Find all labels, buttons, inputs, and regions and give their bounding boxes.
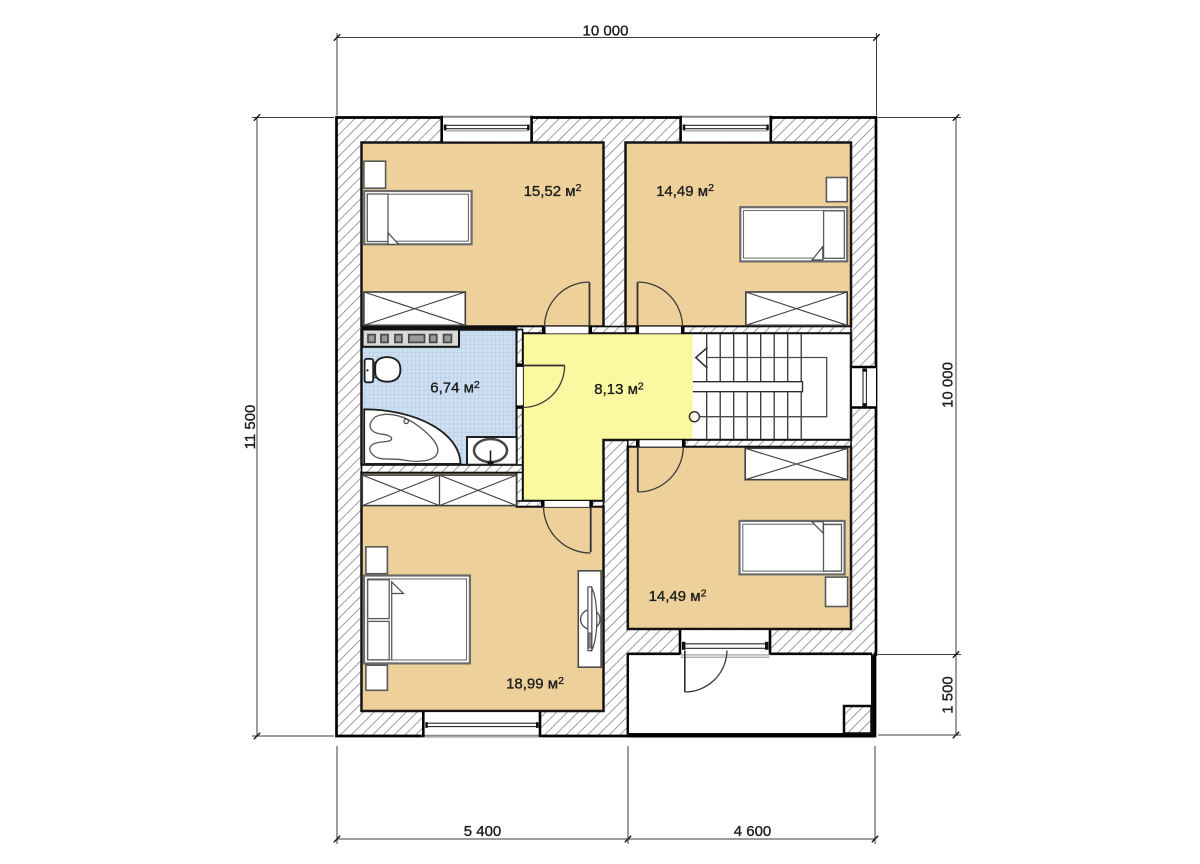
svg-text:14,49 м2: 14,49 м2 [649, 587, 707, 605]
svg-text:8,13 м2: 8,13 м2 [594, 380, 644, 398]
svg-text:18,99 м2: 18,99 м2 [506, 675, 564, 693]
svg-text:10 000: 10 000 [940, 362, 957, 408]
svg-text:6,74 м2: 6,74 м2 [430, 379, 480, 397]
svg-text:11 500: 11 500 [242, 405, 259, 450]
svg-text:1 500: 1 500 [940, 676, 957, 714]
svg-text:15,52 м2: 15,52 м2 [524, 182, 582, 200]
svg-text:14,49 м2: 14,49 м2 [656, 182, 714, 200]
svg-text:5 400: 5 400 [464, 823, 502, 840]
svg-text:4 600: 4 600 [734, 823, 772, 840]
svg-text:10 000: 10 000 [583, 23, 629, 40]
